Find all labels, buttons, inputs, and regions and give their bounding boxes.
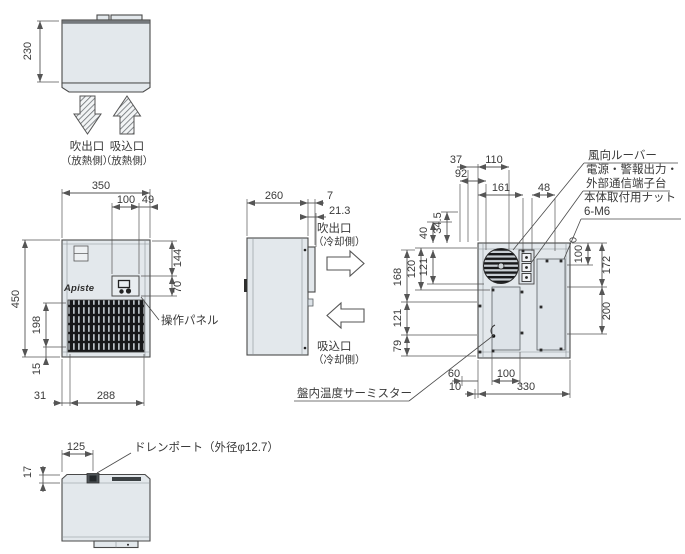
- intake-arrow-icon: [114, 96, 141, 134]
- dim-rear-10: 10: [449, 381, 461, 393]
- top-body: [62, 20, 150, 83]
- front-view: Apiste 350 100 49 450 198 15: [10, 180, 219, 406]
- top-tab-small: [97, 15, 109, 20]
- dim-top-to-panel: 144: [172, 249, 184, 267]
- top-chamfer: [62, 83, 150, 92]
- dim-rear-100r: 100: [573, 245, 585, 263]
- label-louver: 風向ルーバー: [588, 148, 657, 162]
- technical-drawing-page: 230 吹出口 （放熱側） 吸込口 （放熱側） Apiste 350 100: [0, 0, 685, 554]
- dim-rear-48: 48: [538, 182, 550, 194]
- screw-icon: [304, 347, 307, 350]
- dim-rear-168: 168: [392, 268, 404, 286]
- dim-duct-depth: 21.3: [329, 205, 350, 217]
- rear-opening-left: [492, 287, 520, 350]
- dim-bottom-17: 17: [22, 466, 34, 478]
- screw-icon: [304, 249, 307, 252]
- terminal-block: [519, 250, 534, 284]
- label-terminal-line2: 外部通信端子台: [586, 176, 667, 190]
- dim-rear-100b: 100: [497, 368, 515, 380]
- screw-icon: [127, 544, 129, 546]
- panel-cooler-dimension-drawing: 230 吹出口 （放熱側） 吸込口 （放熱側） Apiste 350 100: [0, 0, 685, 554]
- dim-rear-120: 120: [406, 260, 418, 278]
- knob-icon: [126, 288, 131, 293]
- dim-foot: 15: [31, 363, 43, 375]
- dim-flange: 7: [327, 190, 333, 202]
- operation-panel: [112, 276, 139, 296]
- label-drain-port: ドレンポート（外径φ12.7）: [134, 441, 279, 454]
- label-mounting-nut-size: 6-M6: [584, 206, 610, 218]
- side-tab: [308, 299, 313, 306]
- label-terminal-line1: 電源・警報出力・: [586, 162, 678, 176]
- label-coolside-in-sub: （冷却側）: [313, 353, 366, 366]
- label-coolside-out: 吹出口: [317, 221, 352, 235]
- dim-rear-200: 200: [601, 302, 613, 320]
- brand-logo: Apiste: [63, 283, 95, 294]
- label-coolside-out-sub: （冷却側）: [313, 235, 366, 248]
- dim-rear-172: 172: [601, 256, 613, 274]
- exhaust-arrow-icon: [74, 96, 101, 134]
- top-view: 230 吹出口 （放熱側） 吸込口 （放熱側）: [22, 15, 153, 167]
- label-exhaust-port: 吹出口: [70, 139, 105, 153]
- dim-front-width: 350: [92, 180, 110, 192]
- side-latch: [244, 279, 247, 292]
- dim-panel-right: 49: [142, 194, 154, 206]
- label-mounting-nut: 本体取付用ナット: [584, 190, 676, 204]
- bottom-body: [62, 475, 150, 542]
- cool-out-arrow-icon: [327, 251, 364, 276]
- label-intake-side: （放熱側）: [101, 154, 154, 167]
- label-thermistor: 盤内温度サーミスター: [297, 386, 412, 400]
- side-body: [247, 238, 308, 355]
- dim-panel-h: 70: [172, 281, 184, 293]
- dim-rear-121b: 121: [392, 309, 404, 327]
- top-tab-large: [111, 15, 142, 20]
- side-view: 260 7 21.3 吹出口 （冷却側） 吸込口 （冷却側）: [244, 190, 366, 366]
- dim-rear-330: 330: [517, 381, 535, 393]
- dim-side-depth: 260: [265, 190, 283, 202]
- drain-port-opening: [90, 476, 97, 482]
- dim-rear-79: 79: [392, 340, 404, 352]
- dim-rear-34-5: 34.5: [432, 212, 444, 233]
- dim-panel-x: 100: [117, 194, 135, 206]
- top-edge-band: [63, 21, 150, 24]
- dim-rear-37: 37: [450, 154, 462, 166]
- bottom-slot: [112, 477, 141, 481]
- label-coolside-in: 吸込口: [317, 340, 352, 353]
- dim-grille-w: 288: [97, 390, 115, 402]
- bottom-view: 125 17 ドレンポート（外径φ12.7）: [22, 441, 279, 548]
- dim-grille-h: 198: [31, 316, 43, 334]
- dim-top-depth: 230: [22, 42, 34, 60]
- dim-front-height: 450: [10, 290, 22, 308]
- dim-rear-121a: 121: [418, 258, 430, 276]
- rear-opening-right: [537, 259, 565, 350]
- side-duct: [308, 247, 315, 292]
- dim-rear-40: 40: [418, 227, 430, 239]
- dim-drain-x: 125: [67, 441, 85, 453]
- knob-icon: [119, 289, 123, 293]
- label-intake-port: 吸込口: [110, 140, 145, 153]
- front-grille: [68, 300, 144, 352]
- fan-hub-icon: [498, 263, 504, 269]
- dim-rear-161: 161: [492, 182, 510, 194]
- cool-in-arrow-icon: [327, 303, 364, 328]
- label-operation-panel: 操作パネル: [161, 313, 219, 327]
- dim-rear-92: 92: [455, 168, 467, 180]
- dim-left-margin: 31: [34, 390, 46, 402]
- dim-rear-110: 110: [485, 154, 503, 166]
